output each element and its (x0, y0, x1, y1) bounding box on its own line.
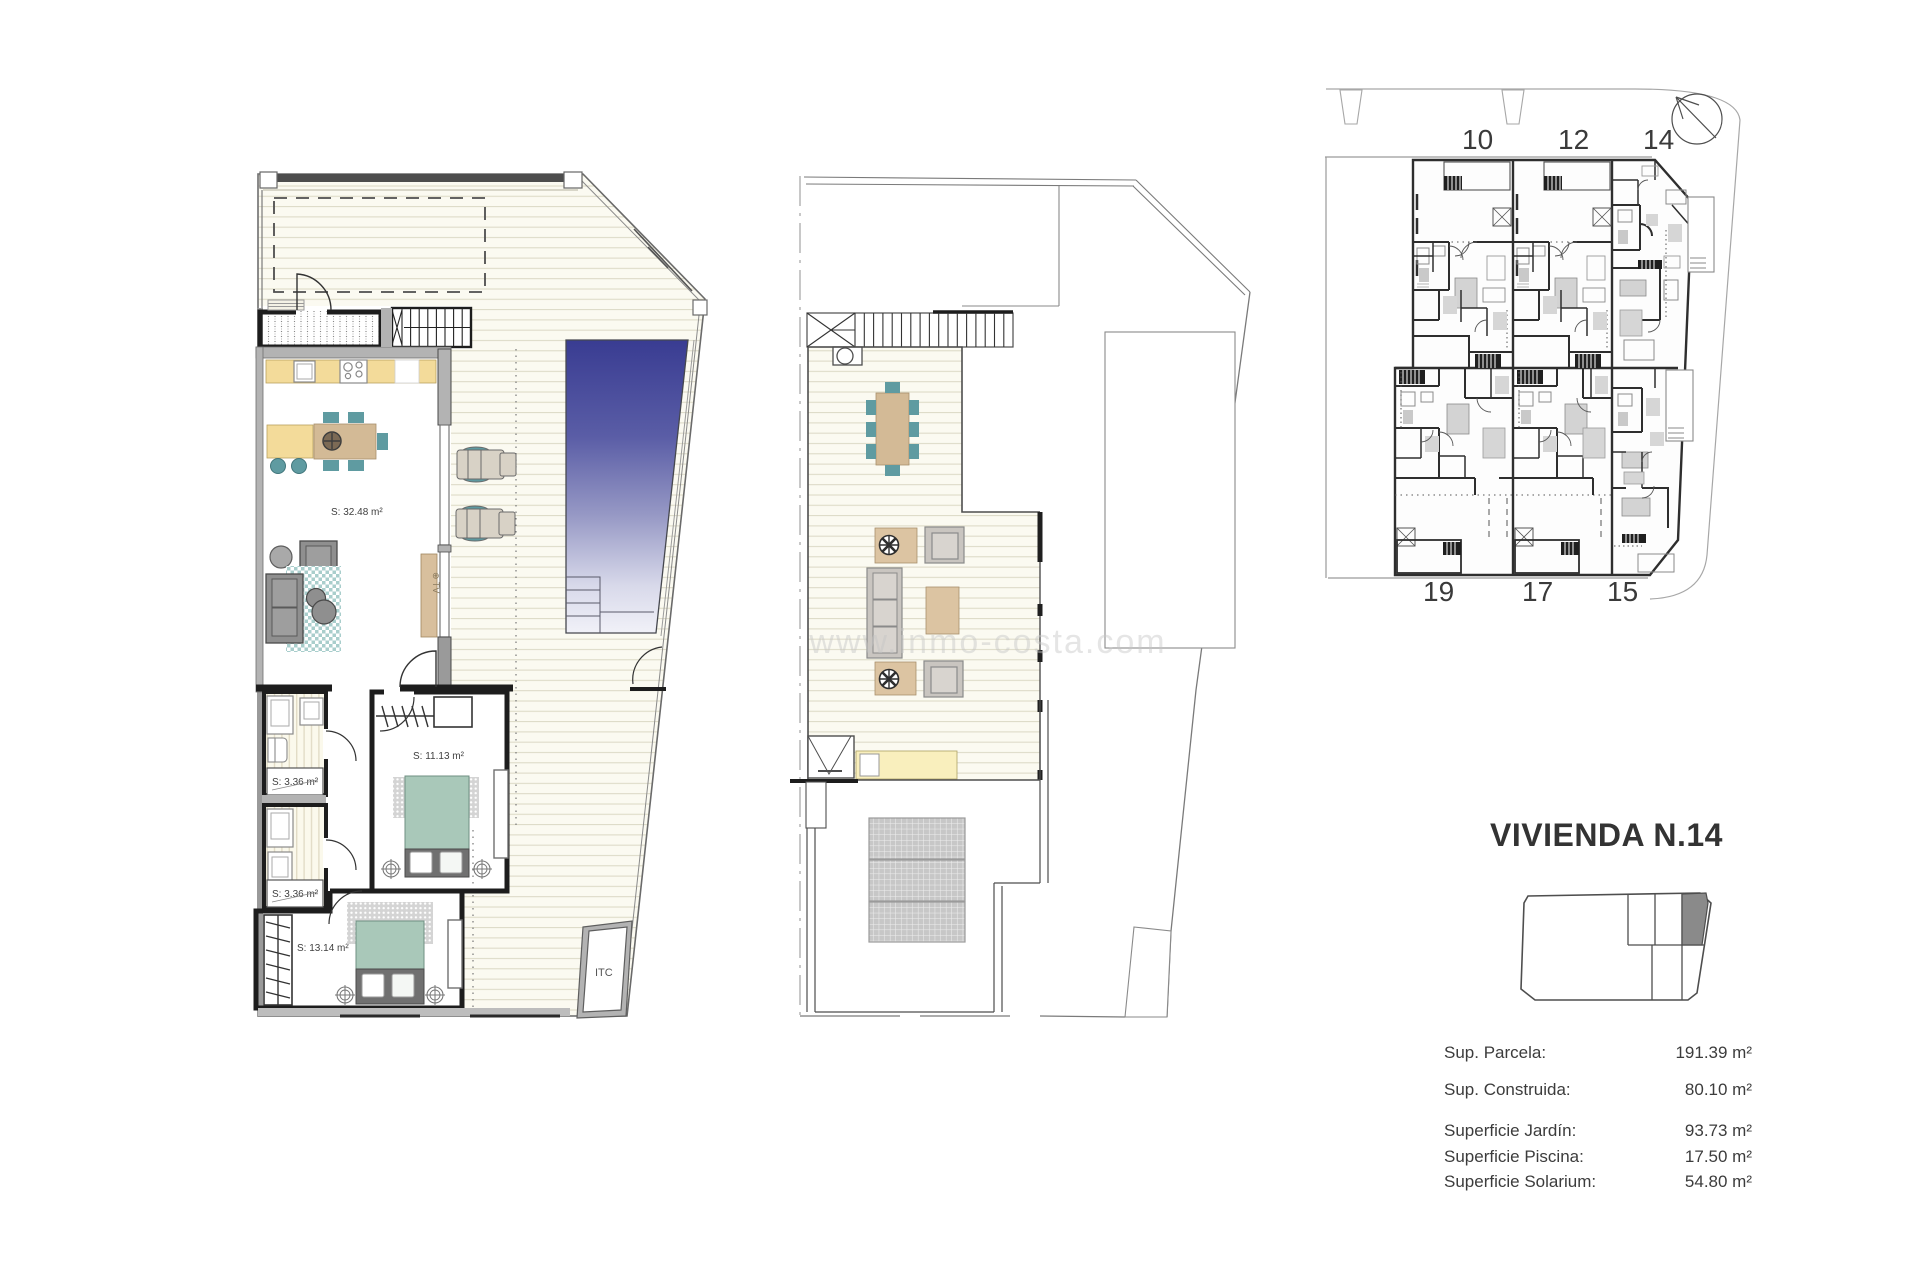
svg-text:S: 32.48 m²: S: 32.48 m² (331, 507, 383, 518)
svg-text:14: 14 (1643, 124, 1674, 155)
svg-text:54.80 m²: 54.80 m² (1685, 1172, 1752, 1191)
svg-text:S: 13.14 m²: S: 13.14 m² (297, 943, 349, 954)
svg-text:15: 15 (1607, 576, 1638, 607)
svg-text:Superficie Jardín:: Superficie Jardín: (1444, 1121, 1576, 1140)
svg-text:17: 17 (1522, 576, 1553, 607)
svg-text:S: 3.36 m²: S: 3.36 m² (272, 889, 319, 900)
svg-text:VIVIENDA N.14: VIVIENDA N.14 (1490, 817, 1723, 853)
svg-text:12: 12 (1558, 124, 1589, 155)
svg-text:19: 19 (1423, 576, 1454, 607)
svg-text:S: 11.13 m²: S: 11.13 m² (413, 751, 465, 762)
svg-text:Sup. Construida:: Sup. Construida: (1444, 1080, 1571, 1099)
svg-text:Superficie Piscina:: Superficie Piscina: (1444, 1147, 1584, 1166)
svg-text:Superficie Solarium:: Superficie Solarium: (1444, 1172, 1596, 1191)
svg-text:191.39 m²: 191.39 m² (1675, 1043, 1752, 1062)
svg-text:ITC: ITC (595, 967, 613, 979)
svg-text:www.inmo-costa.com: www.inmo-costa.com (808, 623, 1166, 661)
svg-text:S: 3.36 m²: S: 3.36 m² (272, 777, 319, 788)
svg-text:⊕ TV: ⊕ TV (431, 572, 441, 593)
svg-text:17.50 m²: 17.50 m² (1685, 1147, 1752, 1166)
svg-text:10: 10 (1462, 124, 1493, 155)
svg-text:93.73 m²: 93.73 m² (1685, 1121, 1752, 1140)
svg-text:80.10 m²: 80.10 m² (1685, 1080, 1752, 1099)
svg-text:Sup. Parcela:: Sup. Parcela: (1444, 1043, 1546, 1062)
